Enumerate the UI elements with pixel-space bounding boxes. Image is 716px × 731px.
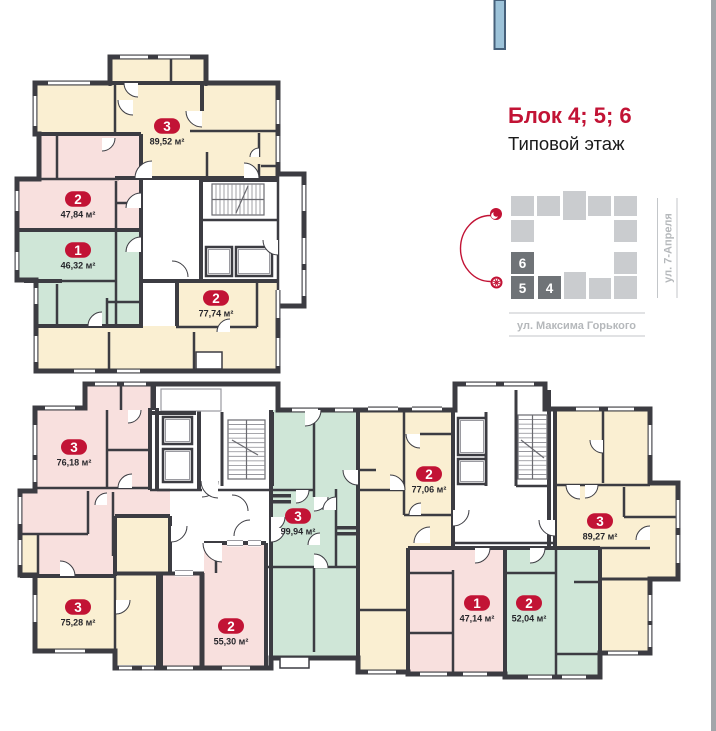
svg-text:99,94 м²: 99,94 м² bbox=[281, 527, 316, 537]
svg-text:2: 2 bbox=[74, 192, 82, 207]
svg-text:Типовой этаж: Типовой этаж bbox=[508, 133, 625, 154]
svg-text:6: 6 bbox=[519, 256, 527, 271]
svg-text:2: 2 bbox=[425, 467, 433, 482]
svg-text:89,27 м²: 89,27 м² bbox=[583, 532, 618, 542]
svg-text:3: 3 bbox=[163, 119, 171, 134]
svg-text:5: 5 bbox=[519, 281, 527, 296]
svg-text:55,30 м²: 55,30 м² bbox=[214, 637, 249, 647]
svg-text:77,06 м²: 77,06 м² bbox=[412, 485, 447, 495]
svg-text:ул. 7-Апреля: ул. 7-Апреля bbox=[663, 213, 675, 283]
svg-text:76,18 м²: 76,18 м² bbox=[57, 458, 92, 468]
svg-text:2: 2 bbox=[525, 596, 533, 611]
svg-text:46,32 м²: 46,32 м² bbox=[61, 261, 96, 271]
svg-text:3: 3 bbox=[74, 600, 82, 615]
svg-text:4: 4 bbox=[546, 281, 554, 296]
svg-text:ул. Максима Горького: ул. Максима Горького bbox=[517, 320, 636, 332]
svg-text:2: 2 bbox=[212, 291, 220, 306]
svg-text:89,52 м²: 89,52 м² bbox=[150, 137, 185, 147]
svg-text:2: 2 bbox=[227, 619, 235, 634]
svg-text:47,14 м²: 47,14 м² bbox=[460, 614, 495, 624]
svg-text:3: 3 bbox=[596, 514, 604, 529]
svg-text:47,84 м²: 47,84 м² bbox=[61, 210, 96, 220]
svg-text:1: 1 bbox=[473, 596, 481, 611]
svg-text:52,04 м²: 52,04 м² bbox=[512, 614, 547, 624]
svg-text:3: 3 bbox=[70, 440, 78, 455]
svg-text:77,74 м²: 77,74 м² bbox=[199, 309, 234, 319]
svg-text:1: 1 bbox=[74, 243, 82, 258]
svg-text:75,28 м²: 75,28 м² bbox=[61, 618, 96, 628]
svg-text:Блок 4; 5; 6: Блок 4; 5; 6 bbox=[508, 103, 632, 128]
svg-text:3: 3 bbox=[294, 509, 302, 524]
